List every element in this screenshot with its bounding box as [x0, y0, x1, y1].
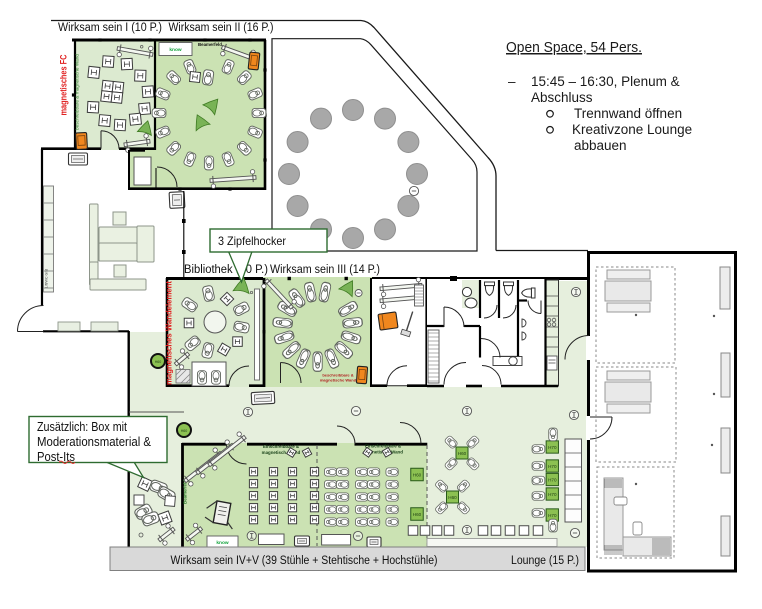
svg-text:Trennwand öffnen: Trennwand öffnen	[574, 106, 682, 121]
svg-text:–: –	[508, 74, 516, 89]
svg-text:Einschreibbare &: Einschreibbare &	[263, 444, 300, 449]
svg-text:H70: H70	[548, 513, 557, 518]
svg-text:Open Space, 54 Pers.: Open Space, 54 Pers.	[506, 39, 642, 56]
svg-text:3 Zipfelhocker: 3 Zipfelhocker	[218, 234, 286, 248]
svg-text:H60: H60	[155, 360, 162, 364]
svg-text:H60: H60	[458, 451, 467, 456]
svg-text:Zusätzlich: Box mit: Zusätzlich: Box mit	[37, 420, 127, 434]
svg-text:H60: H60	[413, 473, 422, 478]
svg-text:H70: H70	[548, 492, 557, 497]
svg-text:Beamerfeld: Beamerfeld	[183, 480, 188, 504]
svg-text:beschreibbare & magnetische Wa: beschreibbare & magnetische Wand	[75, 54, 80, 130]
svg-text:Bibliothek (10 P.): Bibliothek (10 P.)	[184, 264, 268, 276]
svg-text:Einschreibbare &: Einschreibbare &	[365, 444, 402, 449]
svg-text:abbauen: abbauen	[574, 138, 627, 153]
svg-text:Kreativzone Lounge: Kreativzone Lounge	[572, 122, 692, 137]
svg-text:Wirksam sein II (16 P.): Wirksam sein II (16 P.)	[169, 22, 274, 34]
svg-text:H60: H60	[448, 495, 457, 500]
svg-text:Wirksam sein I (10 P.): Wirksam sein I (10 P.)	[58, 22, 162, 34]
svg-text:Wirksam sein IV+V (39 Stühle +: Wirksam sein IV+V (39 Stühle + Stehtisch…	[171, 553, 438, 567]
svg-text:magnetisches Wandelement: magnetisches Wandelement	[164, 281, 174, 385]
svg-text:know: know	[169, 47, 182, 53]
svg-text:Lift/WC Grid: Lift/WC Grid	[45, 269, 49, 288]
svg-text:know: know	[216, 540, 229, 546]
svg-text:H60: H60	[181, 429, 188, 433]
svg-text:Post-Its: Post-Its	[37, 450, 75, 464]
svg-text:H70: H70	[548, 445, 557, 450]
svg-text:Wirksam sein III (14 P.): Wirksam sein III (14 P.)	[270, 264, 380, 276]
svg-text:15:45 – 16:30, Plenum &: 15:45 – 16:30, Plenum &	[531, 74, 680, 89]
svg-text:Beamerfeld: Beamerfeld	[198, 42, 222, 47]
svg-text:H60: H60	[413, 512, 422, 517]
svg-text:Lounge (15 P.): Lounge (15 P.)	[511, 553, 579, 567]
svg-text:Moderationsmaterial &: Moderationsmaterial &	[37, 435, 152, 449]
svg-text:magnetisches FC: magnetisches FC	[58, 54, 68, 115]
svg-text:Abschluss: Abschluss	[531, 90, 593, 105]
svg-text:magnetische Wand: magnetische Wand	[320, 378, 357, 383]
svg-text:H70: H70	[548, 464, 557, 469]
svg-text:H70: H70	[548, 478, 557, 483]
